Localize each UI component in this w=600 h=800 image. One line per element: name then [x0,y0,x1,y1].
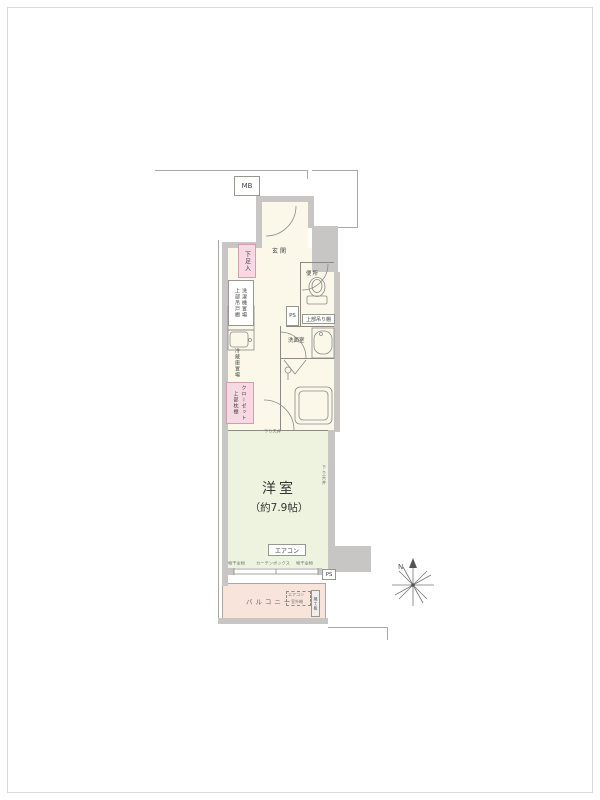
bathtub-icon [285,367,332,424]
entrance-door-arc [266,206,296,236]
toilet-door-arc [302,264,328,290]
laundry-label: 洗濯機置場 [241,288,248,318]
main-room-label: 洋室 （約7.9帖） [230,478,328,515]
fridge-space-label: 冷蔵庫置場 [234,348,241,384]
shoe-box-label: 下足入 [243,251,252,272]
aircon-label: エアコン [275,546,299,555]
closet-box: 上部枕棚 クローゼット [226,382,254,424]
pipe-space-upper-label: PS [289,313,296,319]
lowered-ceiling-note-right: 下り天井 [321,465,327,501]
balcony-partition-label: 隔て板 [313,597,318,611]
pipe-space-lower-label: PS [326,572,333,578]
shoe-box: 下足入 [238,244,256,278]
entrance-label: 玄関 [272,246,288,255]
washbasin-icon [312,328,334,358]
sink-icon [228,330,254,350]
floorplan-image: MB 玄関 下足入 上部吊戸棚 洗濯機置場 冷蔵庫置場 上部枕棚 クローゼット … [0,0,600,800]
aircon-box: エアコン [268,544,306,556]
closet-shelf-label: 上部枕棚 [233,391,240,415]
toilet-icon [307,278,327,305]
outdoor-unit-box: エアコン 室外機 [286,591,311,606]
main-room-size: （約7.9帖） [230,500,328,515]
lowered-ceiling-note-top: 下り天井 [264,428,281,434]
outdoor-unit-line1: エアコン [288,592,304,598]
curtain-box-label: カーテンボックス [256,560,290,566]
balcony-partition: 隔て板 [311,590,320,617]
room-door-arc [264,400,294,430]
main-room-name: 洋室 [230,478,328,498]
toilet-label: 便所 [306,269,319,277]
meter-box-label: MB [242,182,253,190]
laundry-pole-left-label: 物干金物 [228,560,245,566]
closet-label: クローゼット [241,385,248,421]
pipe-space-upper: PS [286,306,299,326]
toilet-shelf-label: 上部吊り棚 [306,316,331,323]
window-icon [234,568,318,575]
pipe-space-lower: PS [322,569,336,580]
meter-box: MB [234,176,260,196]
compass-north-label: N [398,563,403,571]
laundry-pole-right-label: 物干金物 [296,560,313,566]
laundry-shelf-label: 上部吊戸棚 [234,288,241,318]
fixtures-layer [0,0,600,800]
toilet-shelf-box: 上部吊り棚 [302,314,335,324]
outdoor-unit-line2: 室外機 [291,599,303,605]
washroom-label: 洗面室 [288,336,305,344]
laundry-space-box: 上部吊戸棚 洗濯機置場 [228,280,254,326]
